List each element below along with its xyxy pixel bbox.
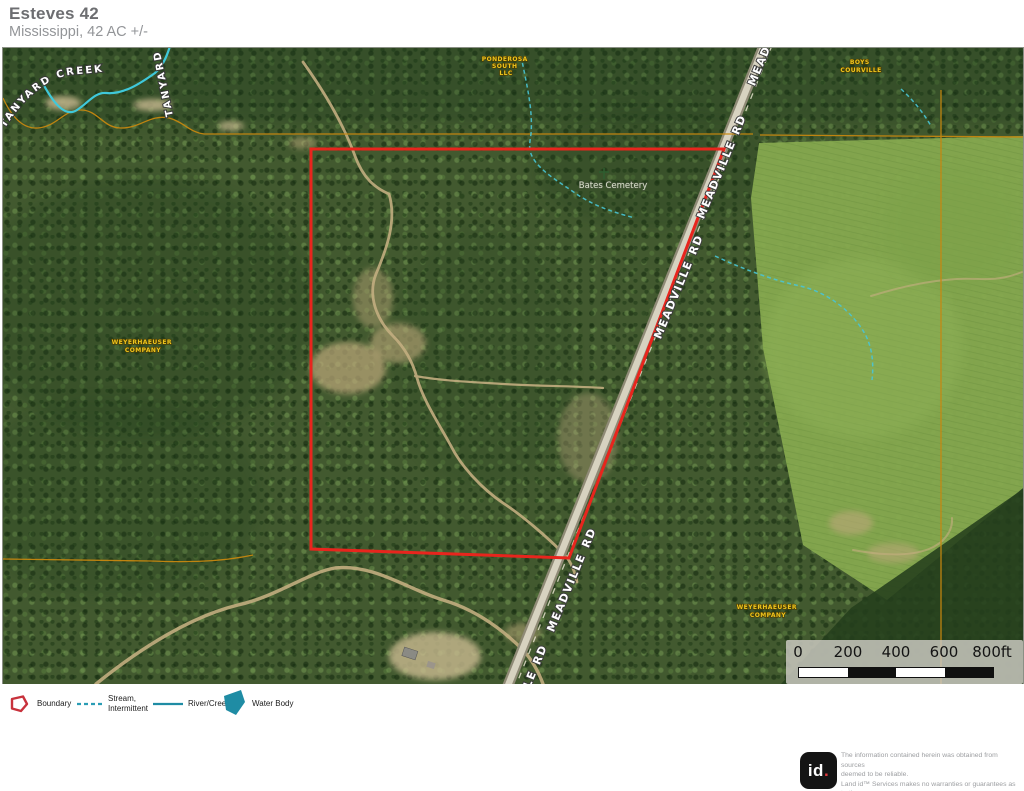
boundary-icon	[8, 694, 30, 714]
scale-tick: 200	[834, 643, 863, 661]
scale-tick: 800ft	[972, 643, 1012, 661]
river-creek-icon	[152, 694, 184, 714]
legend-label-waterbody: Water Body	[252, 699, 294, 709]
scale-tick: 400	[882, 643, 911, 661]
water-body-icon	[221, 688, 247, 718]
map-graphics: TANYARD CREEK TANYARD CREEK MEADVILLE RD…	[3, 48, 1023, 684]
scale-tick: 0	[793, 643, 803, 661]
footer-disclaimer: The information contained herein was obt…	[841, 751, 1023, 791]
map-legend: Boundary Stream, Intermittent River/Cree…	[0, 684, 1024, 726]
legend-label-stream: Stream, Intermittent	[108, 694, 148, 715]
owner-label-weyerhaeuser-right: WEYERHAEUSER COMPANY	[737, 604, 800, 619]
cemetery-label: Bates Cemetery	[579, 181, 648, 191]
aerial-map[interactable]: TANYARD CREEK TANYARD CREEK MEADVILLE RD…	[2, 47, 1024, 685]
page-subtitle: Mississippi, 42 AC +/-	[9, 24, 148, 40]
map-scalebar: 0 200 400 600 800ft	[786, 640, 1023, 684]
page-title: Esteves 42	[9, 4, 99, 24]
scale-tick: 600	[930, 643, 959, 661]
scalebar-segments	[798, 667, 994, 678]
logo-text: id	[808, 761, 824, 780]
page: Esteves 42 Mississippi, 42 AC +/-	[0, 0, 1024, 791]
stream-intermittent-icon	[76, 694, 104, 714]
legend-label-boundary: Boundary	[37, 699, 71, 709]
land-id-logo: id.	[800, 752, 837, 789]
logo-dot: .	[824, 761, 829, 780]
